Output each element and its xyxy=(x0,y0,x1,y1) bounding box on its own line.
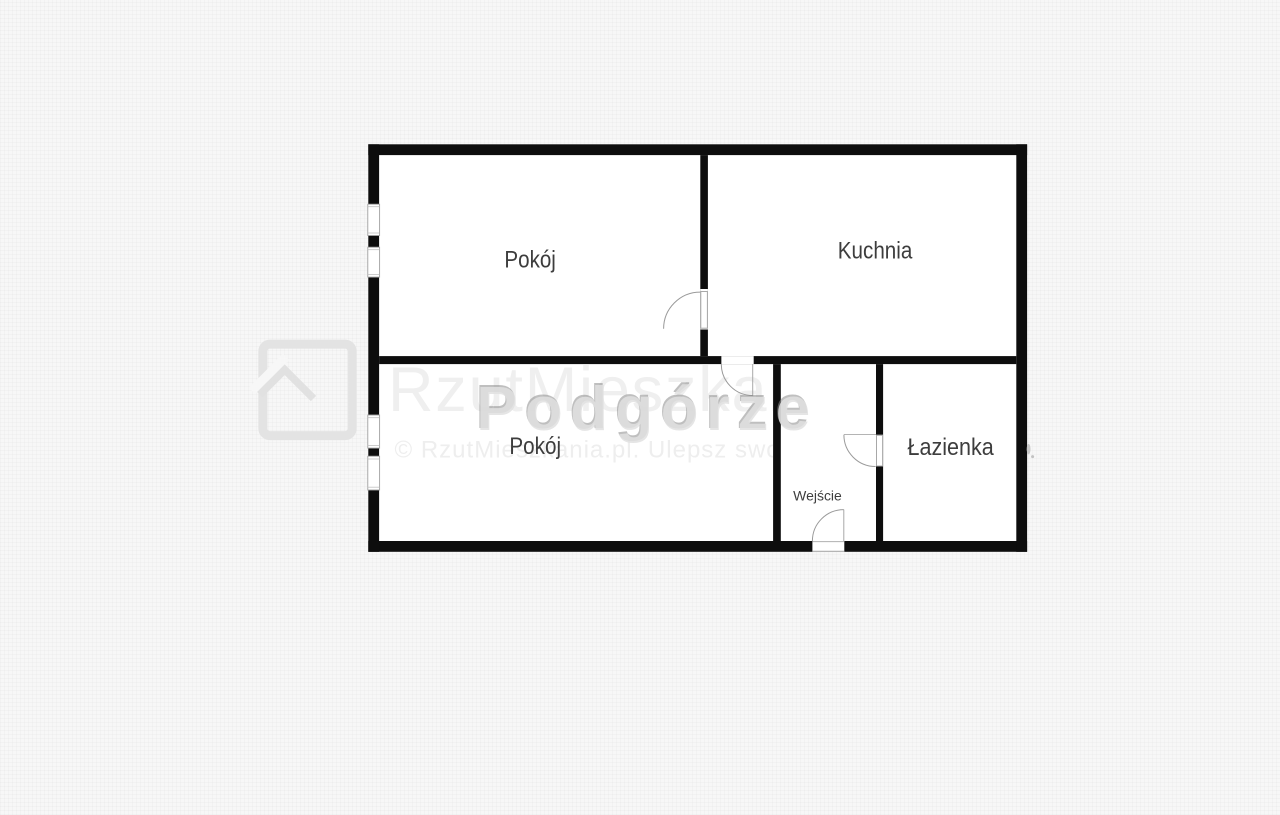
svg-text:Podgórze: Podgórze xyxy=(476,375,810,444)
svg-text:Pokój: Pokój xyxy=(504,246,556,273)
svg-text:Kuchnia: Kuchnia xyxy=(838,237,913,264)
svg-text:Łazienka: Łazienka xyxy=(908,434,995,461)
svg-text:Wejście: Wejście xyxy=(793,488,842,503)
